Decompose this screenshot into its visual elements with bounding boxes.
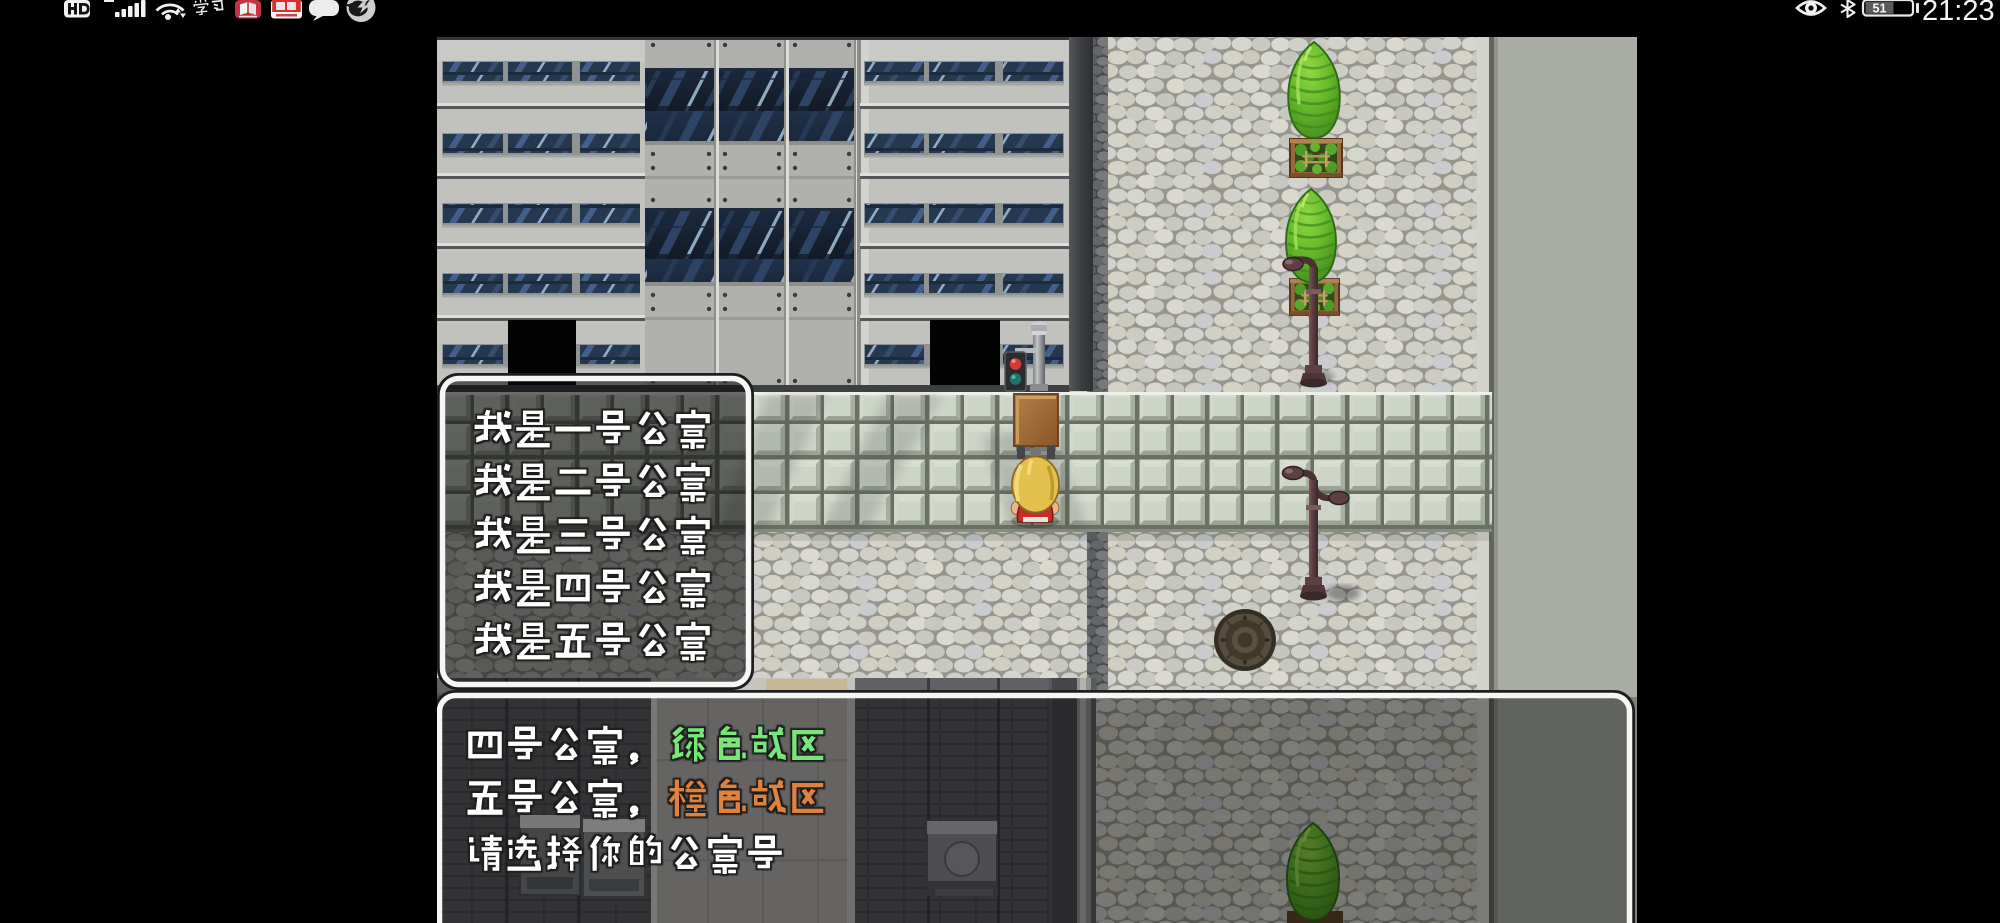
svg-text:51: 51 bbox=[1873, 1, 1887, 15]
svg-text:21:23: 21:23 bbox=[1922, 0, 1995, 26]
